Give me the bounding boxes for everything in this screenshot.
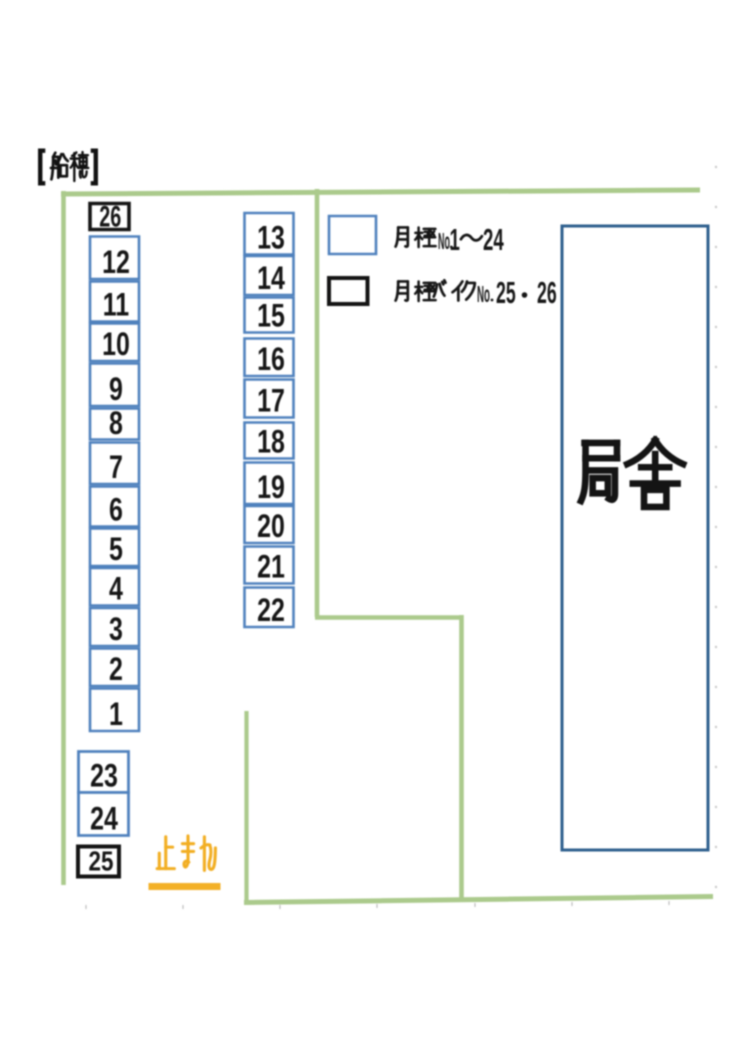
svg-text:6: 6 [109,493,123,529]
svg-text:No: No [477,281,490,307]
svg-text:2: 2 [109,652,123,688]
svg-text:24: 24 [90,802,118,838]
svg-text:18: 18 [257,425,285,461]
svg-text:26: 26 [537,276,557,310]
svg-text:25: 25 [89,846,114,877]
svg-text:3: 3 [109,612,123,648]
svg-text:19: 19 [257,470,285,506]
svg-text:15: 15 [257,299,285,335]
svg-text:11: 11 [103,288,129,324]
svg-text:21: 21 [257,550,285,586]
svg-text:12: 12 [102,245,130,281]
svg-text:14: 14 [257,261,285,297]
svg-text:1: 1 [450,223,460,257]
svg-text:1: 1 [109,697,123,733]
svg-text:25: 25 [496,276,516,310]
svg-text:23: 23 [90,759,118,795]
svg-text:5: 5 [109,532,123,568]
svg-text:17: 17 [257,384,285,420]
svg-text:4: 4 [109,572,123,608]
svg-text:26: 26 [99,201,121,234]
svg-text:8: 8 [109,406,123,442]
svg-text:22: 22 [257,593,285,629]
svg-text:9: 9 [109,372,123,408]
svg-text:10: 10 [102,327,130,363]
svg-text:No: No [438,228,450,254]
svg-text:16: 16 [257,342,285,378]
svg-text:7: 7 [109,450,123,486]
svg-text:20: 20 [257,509,285,545]
svg-text:24: 24 [483,223,504,257]
svg-text:13: 13 [257,221,285,257]
